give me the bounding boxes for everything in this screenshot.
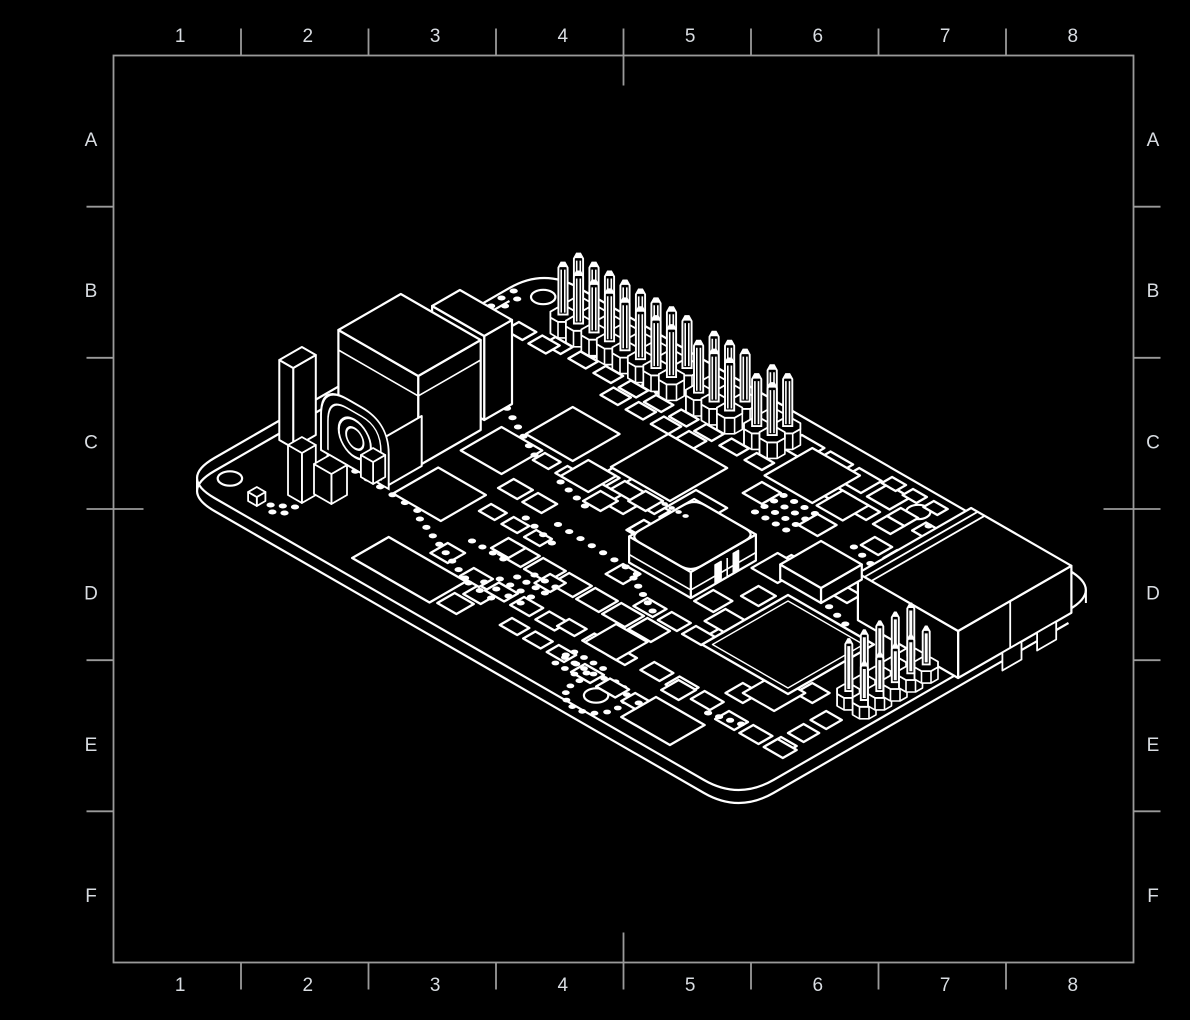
svg-text:7: 7 [940, 975, 951, 996]
svg-text:3: 3 [430, 975, 441, 996]
svg-text:6: 6 [813, 975, 824, 996]
svg-text:8: 8 [1068, 26, 1079, 47]
svg-text:6: 6 [813, 26, 824, 47]
svg-text:5: 5 [685, 26, 696, 47]
svg-text:5: 5 [685, 975, 696, 996]
svg-text:A: A [85, 130, 98, 151]
svg-text:B: B [85, 281, 98, 302]
svg-text:E: E [1147, 735, 1160, 756]
svg-text:F: F [1147, 886, 1159, 907]
svg-text:D: D [1146, 584, 1160, 605]
svg-text:D: D [84, 584, 98, 605]
svg-text:B: B [1147, 281, 1160, 302]
svg-text:3: 3 [430, 26, 441, 47]
svg-text:A: A [1147, 130, 1160, 151]
svg-text:7: 7 [940, 26, 951, 47]
svg-text:4: 4 [558, 975, 569, 996]
svg-text:4: 4 [558, 26, 569, 47]
svg-text:2: 2 [303, 26, 314, 47]
svg-text:C: C [84, 432, 98, 453]
svg-text:F: F [85, 886, 97, 907]
svg-text:1: 1 [175, 975, 186, 996]
svg-text:1: 1 [175, 26, 186, 47]
svg-text:8: 8 [1068, 975, 1079, 996]
svg-text:C: C [1146, 432, 1160, 453]
svg-text:2: 2 [303, 975, 314, 996]
svg-text:E: E [85, 735, 98, 756]
